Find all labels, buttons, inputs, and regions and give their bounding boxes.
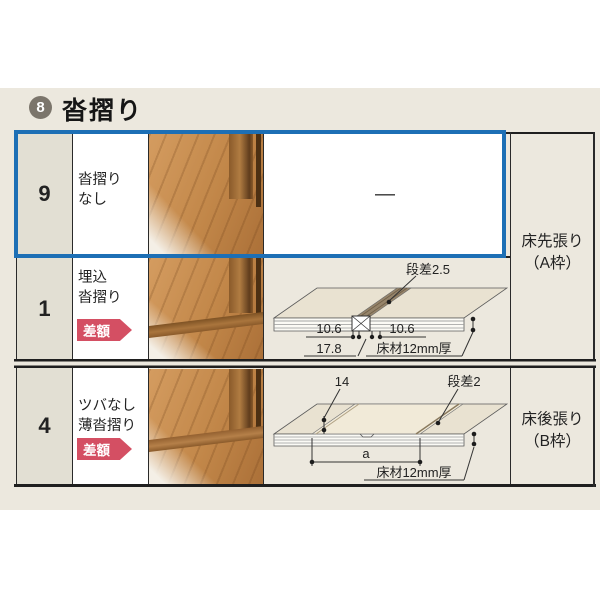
group-divider-double-line	[14, 359, 596, 368]
catalog-page: 8 沓摺り 9 沓摺り なし — 1 埋込 沓摺り 差額	[0, 0, 600, 600]
option-row-1[interactable]	[16, 257, 594, 360]
table-bottom-border	[14, 484, 596, 487]
section-number: 8	[36, 99, 44, 116]
section-title: 沓摺り	[62, 91, 143, 127]
option-row-4[interactable]	[16, 368, 594, 484]
highlight-box	[14, 130, 506, 258]
section-number-badge: 8	[29, 96, 52, 119]
